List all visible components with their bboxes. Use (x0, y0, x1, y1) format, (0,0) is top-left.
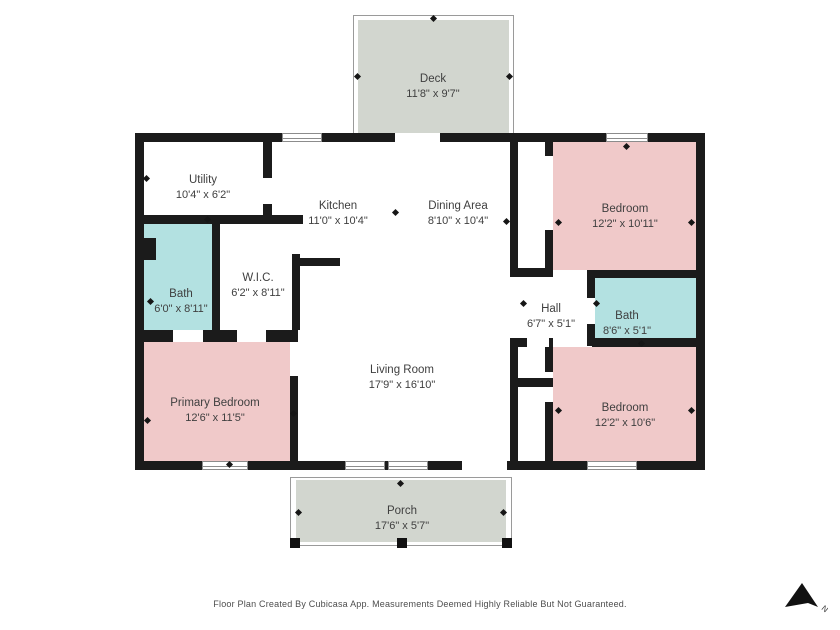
wall-primary-right (290, 376, 298, 470)
room-dimensions: 12'6" x 11'5" (170, 411, 259, 426)
room-label-wic: W.I.C. 6'2" x 8'11" (231, 271, 284, 301)
room-name: Bedroom (595, 401, 655, 416)
room-label-kitchen: Kitchen 11'0" x 10'4" (308, 199, 368, 229)
room-label-living-room: Living Room 17'9" x 16'10" (369, 363, 435, 393)
room-dimensions: 12'2" x 10'11" (592, 217, 658, 232)
room-name: Living Room (369, 363, 435, 378)
room-label-dining-area: Dining Area 8'10" x 10'4" (428, 199, 488, 229)
room-dimensions: 10'4" x 6'2" (176, 188, 230, 203)
window (282, 133, 322, 142)
wall-utility-right (263, 142, 272, 178)
wall-closet-divider (510, 378, 553, 387)
room-label-primary-bedroom: Primary Bedroom 12'6" x 11'5" (170, 396, 259, 426)
porch-post (502, 538, 512, 548)
porch-post (290, 538, 300, 548)
wall-closet-strip-left (510, 142, 518, 277)
room-dimensions: 6'0" x 8'11" (154, 302, 207, 317)
wall-utility-bottom (135, 215, 303, 224)
room-dimensions: 6'2" x 8'11" (231, 286, 284, 301)
window (587, 461, 637, 470)
room-dimensions: 17'6" x 5'7" (375, 519, 429, 534)
room-name: Dining Area (428, 199, 488, 214)
wall-kitchen-stub (300, 258, 340, 266)
wall-hall-bottom (549, 338, 553, 347)
room-name: Bath (154, 287, 207, 302)
wall-bedroom-bottom-top (592, 338, 705, 347)
porch-door-opening (462, 461, 507, 470)
room-label-hall: Hall 6'7" x 5'1" (527, 302, 575, 332)
floor-plan-canvas: Deck 11'8" x 9'7" Utility 10'4" x 6'2" K… (0, 0, 840, 630)
wall-closet-left (510, 338, 518, 470)
room-label-porch: Porch 17'6" x 5'7" (375, 504, 429, 534)
room-name: Hall (527, 302, 575, 317)
room-dimensions: 8'6" x 5'1" (603, 324, 651, 339)
room-dimensions: 12'2" x 10'6" (595, 416, 655, 431)
window (606, 133, 648, 142)
tick-mark (392, 209, 399, 216)
wall-closet-right (545, 402, 553, 470)
deck-door-opening (395, 133, 440, 142)
wall-primary-top (266, 330, 298, 342)
wall-utility-right (263, 204, 272, 215)
room-name: Porch (375, 504, 429, 519)
wall-closet-right (545, 347, 553, 372)
wall-bedroom-top-bottom (587, 270, 705, 278)
room-name: Utility (176, 173, 230, 188)
tick-mark (503, 218, 510, 225)
room-dimensions: 6'7" x 5'1" (527, 317, 575, 332)
room-label-bedroom-top: Bedroom 12'2" x 10'11" (592, 202, 658, 232)
room-dimensions: 17'9" x 16'10" (369, 378, 435, 393)
wall-bedroom-top-left (545, 142, 553, 156)
porch-post (397, 538, 407, 548)
room-dimensions: 11'8" x 9'7" (406, 87, 459, 102)
room-name: Kitchen (308, 199, 368, 214)
room-label-bath-right: Bath 8'6" x 5'1" (603, 309, 651, 339)
north-arrow-icon: N (772, 576, 828, 620)
room-name: Bath (603, 309, 651, 324)
wall-bedroom-top-left (545, 230, 553, 277)
room-dimensions: 11'0" x 10'4" (308, 214, 368, 229)
wall-exterior-right (696, 133, 705, 470)
room-label-bedroom-bottom: Bedroom 12'2" x 10'6" (595, 401, 655, 431)
wall-bath-right-left (587, 278, 595, 298)
wall-primary-top (135, 330, 173, 342)
north-arrow-label: N (820, 604, 828, 615)
room-name: Deck (406, 72, 459, 87)
room-name: Bedroom (592, 202, 658, 217)
room-label-deck: Deck 11'8" x 9'7" (406, 72, 459, 102)
wall-wic-left (212, 224, 220, 330)
window (388, 461, 428, 470)
north-arrow-shape (785, 583, 818, 607)
room-name: Primary Bedroom (170, 396, 259, 411)
room-label-bath-left: Bath 6'0" x 8'11" (154, 287, 207, 317)
disclaimer-text: Floor Plan Created By Cubicasa App. Meas… (0, 599, 840, 609)
wall-bath-notch (138, 238, 156, 260)
room-label-utility: Utility 10'4" x 6'2" (176, 173, 230, 203)
window (202, 461, 248, 470)
room-name: W.I.C. (231, 271, 284, 286)
wall-exterior-left (135, 133, 144, 470)
wall-primary-top (203, 330, 237, 342)
room-dimensions: 8'10" x 10'4" (428, 214, 488, 229)
wall-wic-right (292, 254, 300, 330)
window (345, 461, 385, 470)
tick-mark (143, 175, 150, 182)
